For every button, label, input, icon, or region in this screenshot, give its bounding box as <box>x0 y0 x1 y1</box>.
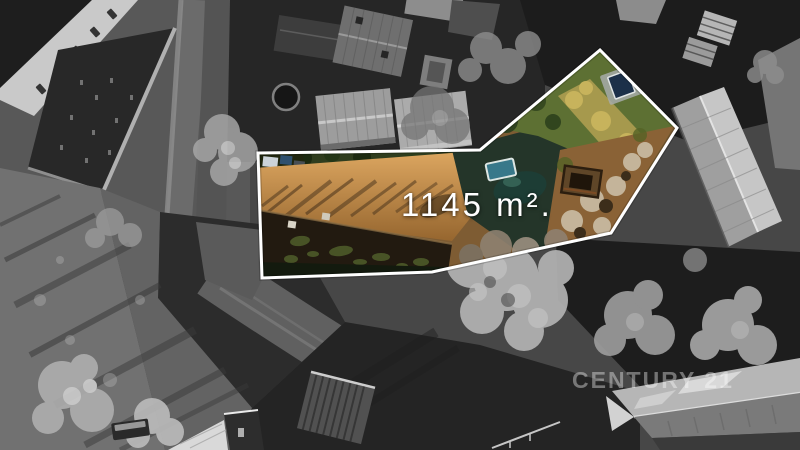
water-tank <box>273 84 299 110</box>
chimney <box>321 212 330 220</box>
chimney <box>287 220 296 228</box>
watermark-century21: CENTURY 21 <box>572 367 734 394</box>
area-label: 1145 m². <box>401 186 553 224</box>
aerial-photo: 1145 m². CENTURY 21 <box>0 0 800 450</box>
road-vertical <box>167 0 230 225</box>
garden-shed <box>561 166 601 198</box>
